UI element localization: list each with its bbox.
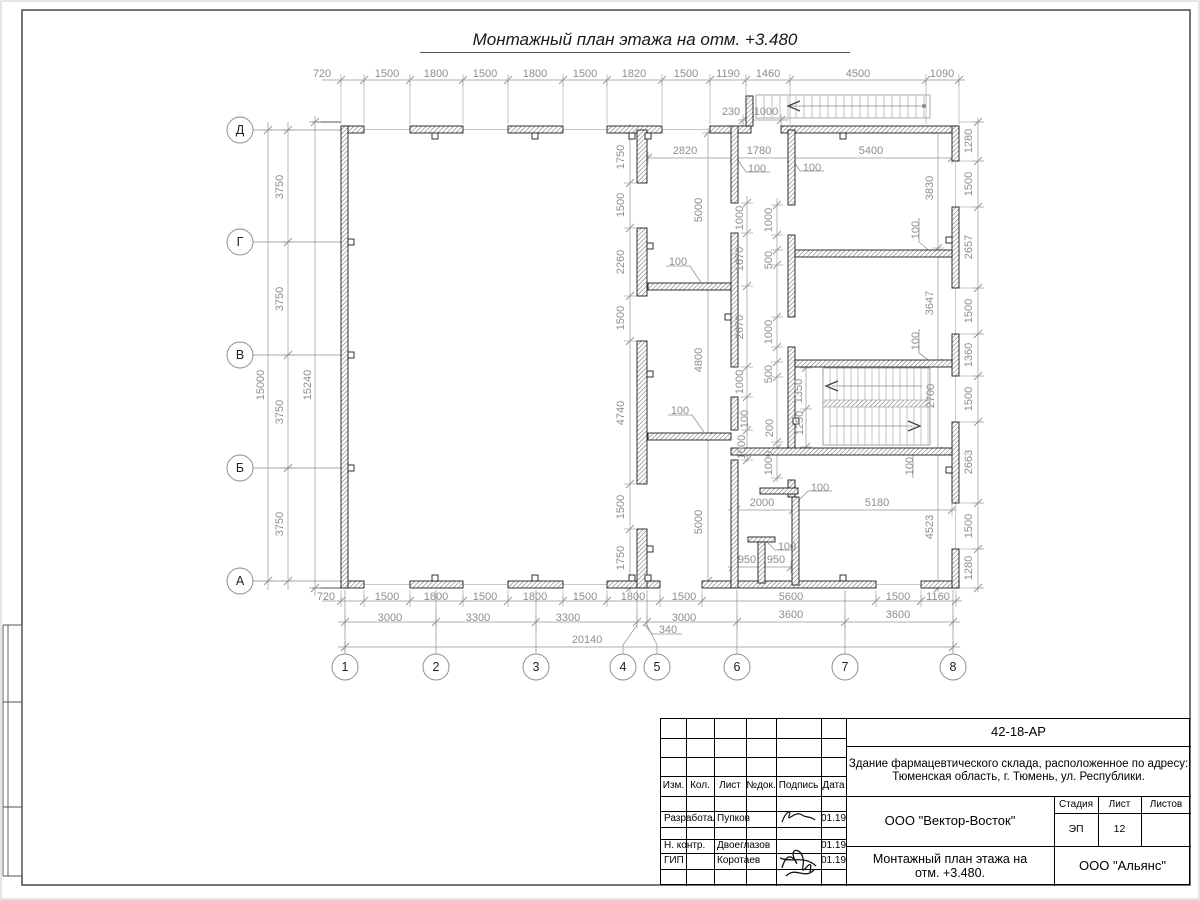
svg-text:1500: 1500 [963, 172, 975, 196]
svg-text:Г: Г [237, 235, 244, 249]
axis-bubble-7: 7 [832, 654, 858, 680]
axis-bubble-Б: Б [227, 455, 253, 481]
axis-bubble-8: 8 [940, 654, 966, 680]
svg-text:1800: 1800 [523, 68, 547, 80]
svg-text:1750: 1750 [615, 546, 627, 570]
svg-text:3: 3 [533, 660, 540, 674]
title-block: Изм.Кол.Лист№док.ПодписьДатаРазработалПу… [660, 718, 1190, 885]
svg-text:5400: 5400 [859, 145, 883, 157]
titleblock-line [661, 796, 846, 797]
sheets-count [1141, 813, 1191, 846]
svg-text:3830: 3830 [924, 176, 936, 200]
svg-text:1500: 1500 [473, 68, 497, 80]
svg-text:1670: 1670 [734, 247, 746, 271]
svg-text:1090: 1090 [930, 68, 954, 80]
svg-text:100: 100 [910, 221, 922, 239]
date-cell: 01.19 [821, 839, 846, 853]
sheet-title: Монтажный план этажа на отм. +3.480. [846, 846, 1054, 886]
axis-bubble-Г: Г [227, 229, 253, 255]
axis-bubble-1: 1 [332, 654, 358, 680]
svg-text:4740: 4740 [615, 401, 627, 425]
svg-text:2663: 2663 [963, 450, 975, 474]
exterior-stair [756, 95, 930, 118]
axis-bubble-6: 6 [724, 654, 750, 680]
svg-text:1280: 1280 [963, 129, 975, 153]
svg-text:100: 100 [803, 162, 821, 174]
svg-text:1160: 1160 [926, 591, 950, 603]
name-cell: Коротаев [714, 853, 776, 869]
svg-text:5000: 5000 [693, 198, 705, 222]
col-header-5: Дата [821, 776, 846, 796]
col-header-4: Подпись [776, 776, 821, 796]
svg-text:2700: 2700 [925, 384, 937, 408]
svg-text:100: 100 [739, 410, 751, 428]
role-cell: Разработал [661, 811, 714, 827]
svg-text:5000: 5000 [693, 510, 705, 534]
col-header-1: Кол. [686, 776, 714, 796]
axis-bubble-3: 3 [523, 654, 549, 680]
svg-text:1750: 1750 [615, 145, 627, 169]
svg-text:3750: 3750 [274, 175, 286, 199]
svg-text:2657: 2657 [963, 235, 975, 259]
svg-text:230: 230 [722, 106, 740, 118]
role-cell: Н. контр. [661, 839, 714, 853]
svg-text:1800: 1800 [424, 591, 448, 603]
axis-bubble-2: 2 [423, 654, 449, 680]
svg-text:4500: 4500 [846, 68, 870, 80]
svg-text:1800: 1800 [621, 591, 645, 603]
svg-text:15000: 15000 [255, 370, 267, 401]
svg-text:1500: 1500 [886, 591, 910, 603]
svg-text:3647: 3647 [924, 291, 936, 315]
titleblock-line [661, 757, 846, 758]
svg-text:2: 2 [433, 660, 440, 674]
svg-text:3300: 3300 [466, 612, 490, 624]
svg-text:1500: 1500 [615, 193, 627, 217]
interior-stair [823, 368, 930, 445]
svg-text:1190: 1190 [716, 68, 740, 80]
svg-text:Д: Д [236, 123, 245, 137]
svg-text:1500: 1500 [963, 299, 975, 323]
sheet-title-line1: Монтажный план этажа на [873, 852, 1027, 866]
svg-text:2820: 2820 [673, 145, 697, 157]
svg-text:3750: 3750 [274, 400, 286, 424]
role-cell: ГИП [661, 853, 714, 869]
svg-text:1500: 1500 [672, 591, 696, 603]
name-cell: Двоеглазов [714, 839, 776, 853]
svg-text:500: 500 [763, 251, 775, 269]
sheets-label: Листов [1141, 796, 1191, 813]
window-openings [364, 130, 956, 585]
svg-text:1360: 1360 [963, 343, 975, 367]
svg-text:1: 1 [342, 660, 349, 674]
svg-text:В: В [236, 348, 244, 362]
svg-text:100: 100 [671, 405, 689, 417]
col-header-3: №док. [746, 776, 776, 796]
svg-text:3750: 3750 [274, 512, 286, 536]
svg-text:4523: 4523 [924, 515, 936, 539]
svg-text:720: 720 [317, 591, 335, 603]
svg-text:1000: 1000 [736, 435, 748, 459]
svg-text:1500: 1500 [375, 68, 399, 80]
svg-text:1000: 1000 [763, 208, 775, 232]
svg-text:1820: 1820 [622, 68, 646, 80]
svg-text:3000: 3000 [378, 612, 402, 624]
axis-bubble-Д: Д [227, 117, 253, 143]
svg-text:8: 8 [950, 660, 957, 674]
svg-text:200: 200 [764, 419, 776, 437]
svg-text:1000: 1000 [763, 320, 775, 344]
svg-text:1000: 1000 [754, 106, 778, 118]
svg-text:950: 950 [767, 554, 785, 566]
svg-text:1460: 1460 [756, 68, 780, 80]
svg-text:1500: 1500 [375, 591, 399, 603]
drawing-sheet: Д Г В Б А 1 2 3 4 5 6 7 8720150018001500… [0, 0, 1200, 900]
svg-text:1500: 1500 [963, 387, 975, 411]
object-address: Здание фармацевтического склада, располо… [846, 746, 1191, 796]
sheet-label: Лист [1098, 796, 1141, 813]
svg-text:6: 6 [734, 660, 741, 674]
svg-text:3600: 3600 [779, 609, 803, 621]
svg-text:1780: 1780 [747, 145, 771, 157]
svg-text:15240: 15240 [302, 370, 314, 401]
walls [341, 96, 959, 588]
drawing-title: Монтажный план этажа на отм. +3.480 [420, 30, 850, 53]
svg-text:А: А [236, 574, 245, 588]
svg-text:720: 720 [313, 68, 331, 80]
signature-stamp [774, 836, 824, 884]
name-cell: Пупков [714, 811, 776, 827]
svg-text:1500: 1500 [674, 68, 698, 80]
doc-number: 42-18-АР [846, 719, 1191, 746]
dimension-texts: 7201500180015001800150018201500119014604… [255, 68, 975, 646]
svg-text:5600: 5600 [779, 591, 803, 603]
signature-razrabotal [776, 807, 821, 829]
svg-text:1500: 1500 [615, 306, 627, 330]
svg-text:1500: 1500 [615, 495, 627, 519]
svg-text:1500: 1500 [573, 68, 597, 80]
svg-text:1000: 1000 [734, 370, 746, 394]
svg-text:1250: 1250 [794, 411, 806, 435]
svg-text:5: 5 [654, 660, 661, 674]
svg-text:5180: 5180 [865, 497, 889, 509]
svg-text:100: 100 [669, 256, 687, 268]
svg-text:1000: 1000 [734, 206, 746, 230]
svg-text:4: 4 [620, 660, 627, 674]
design-org: ООО "Вектор-Восток" [846, 796, 1054, 846]
svg-text:340: 340 [659, 624, 677, 636]
titleblock-line [661, 738, 846, 739]
svg-text:1350: 1350 [793, 379, 805, 403]
client-org: ООО "Альянс" [1054, 846, 1191, 886]
svg-text:3300: 3300 [556, 612, 580, 624]
svg-text:3000: 3000 [672, 612, 696, 624]
date-cell: 01.19 [821, 853, 846, 869]
svg-text:20140: 20140 [572, 634, 603, 646]
svg-text:1800: 1800 [424, 68, 448, 80]
axis-bubble-В: В [227, 342, 253, 368]
svg-text:2000: 2000 [750, 497, 774, 509]
svg-text:1500: 1500 [473, 591, 497, 603]
svg-text:3750: 3750 [274, 287, 286, 311]
svg-text:100: 100 [811, 482, 829, 494]
svg-text:100: 100 [748, 163, 766, 175]
sheet-number: 12 [1098, 813, 1141, 846]
svg-text:2670: 2670 [734, 315, 746, 339]
axis-bubble-5: 5 [644, 654, 670, 680]
svg-text:1800: 1800 [523, 591, 547, 603]
svg-text:950: 950 [738, 554, 756, 566]
svg-text:4800: 4800 [693, 348, 705, 372]
date-cell: 01.19 [821, 811, 846, 827]
stage-value: ЭП [1054, 813, 1098, 846]
axis-bubble-А: А [227, 568, 253, 594]
svg-text:7: 7 [842, 660, 849, 674]
svg-text:1000: 1000 [763, 451, 775, 475]
svg-text:1500: 1500 [573, 591, 597, 603]
col-header-0: Изм. [661, 776, 686, 796]
svg-text:100: 100 [910, 332, 922, 350]
svg-text:500: 500 [763, 365, 775, 383]
svg-text:2260: 2260 [615, 250, 627, 274]
svg-text:100: 100 [778, 541, 796, 553]
axis-bubble-4: 4 [610, 654, 636, 680]
svg-text:1500: 1500 [963, 514, 975, 538]
svg-text:Б: Б [236, 461, 244, 475]
svg-text:100: 100 [904, 457, 916, 475]
svg-text:1280: 1280 [963, 556, 975, 580]
sheet-title-line2: отм. +3.480. [915, 866, 985, 880]
stage-label: Стадия [1054, 796, 1098, 813]
address-line1: Здание фармацевтического склада, располо… [849, 758, 1188, 771]
address-line2: Тюменская область, г. Тюмень, ул. Респуб… [892, 771, 1145, 784]
svg-text:3600: 3600 [886, 609, 910, 621]
col-header-2: Лист [714, 776, 746, 796]
